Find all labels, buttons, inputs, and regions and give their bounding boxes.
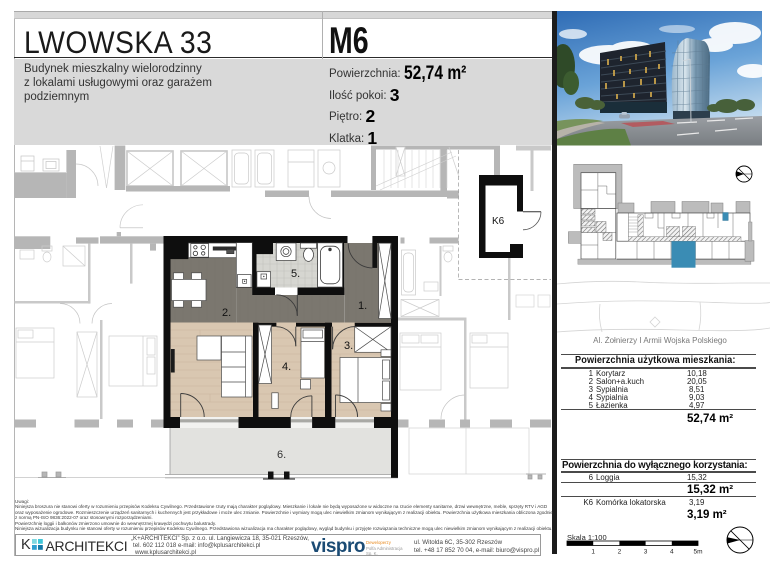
svg-text:1: 1: [591, 549, 595, 556]
svg-text:5.: 5.: [291, 268, 300, 280]
svg-text:4.: 4.: [282, 361, 291, 373]
svg-text:6.: 6.: [277, 449, 286, 461]
svg-text:K6: K6: [492, 216, 505, 227]
svg-text:1.: 1.: [358, 300, 367, 312]
svg-text:3: 3: [644, 549, 648, 556]
svg-text:3.: 3.: [344, 340, 353, 352]
svg-text:2: 2: [618, 549, 622, 556]
svg-text:4: 4: [670, 549, 674, 556]
svg-text:5m: 5m: [693, 549, 702, 556]
svg-text:2.: 2.: [222, 307, 231, 319]
